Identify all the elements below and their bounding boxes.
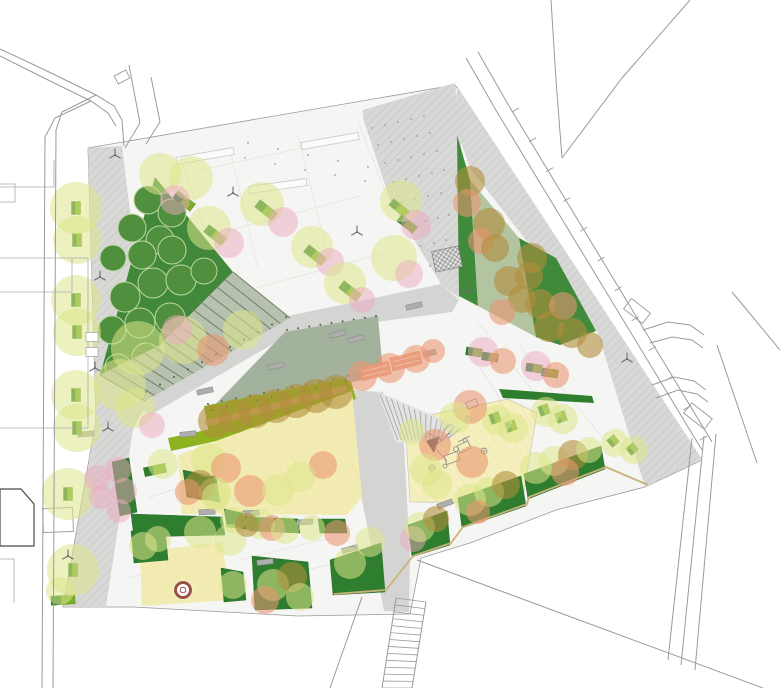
tree-canopy-pk xyxy=(139,412,165,438)
tree-canopy-yg xyxy=(422,469,452,499)
apex-dots xyxy=(377,144,379,146)
tree-canopy-yg xyxy=(184,516,216,548)
stud-row-sage-top xyxy=(286,329,288,331)
stud-row-path xyxy=(271,324,273,326)
lawn-mown-trees-mw xyxy=(118,214,146,242)
tree-canopy-sa xyxy=(251,586,279,614)
tree-canopy-pk xyxy=(107,499,131,523)
apex-dots xyxy=(410,118,412,120)
tree-canopy-sa xyxy=(489,299,515,325)
apex-dots xyxy=(423,115,425,117)
stairs xyxy=(393,619,423,622)
road-line xyxy=(681,436,704,665)
tree-canopy-yg xyxy=(202,483,230,511)
building-tab xyxy=(86,348,98,357)
apex-dots xyxy=(384,124,386,126)
tree-canopy-sa xyxy=(456,446,488,478)
stairs xyxy=(385,667,415,668)
plaza-dots xyxy=(334,174,336,176)
road-line xyxy=(695,434,716,670)
building-line xyxy=(0,160,54,187)
tree-canopy-sa xyxy=(453,189,481,217)
lawn-mown-trees-mw xyxy=(100,245,126,271)
apex-dots xyxy=(429,265,431,267)
tree-canopy-yg xyxy=(46,577,74,605)
tree-canopy-yg xyxy=(219,571,247,599)
stud-row-sage-top xyxy=(331,322,333,324)
tree-canopy-sa xyxy=(543,362,569,388)
stairs xyxy=(387,653,417,655)
stud-row-sage-top xyxy=(375,315,377,317)
tree-canopy-sa xyxy=(551,458,579,486)
stud-row-path xyxy=(187,369,189,371)
plaza-dots xyxy=(244,157,246,159)
road-line xyxy=(562,0,690,158)
tree-canopy-yg xyxy=(498,413,528,443)
tree-canopy-sa xyxy=(490,348,516,374)
tree-canopy-tn xyxy=(577,332,603,358)
tree-canopy-sa xyxy=(234,475,266,507)
parking-ticks xyxy=(512,108,519,112)
stud-row-sage-top xyxy=(319,324,321,326)
tree-canopy-yg xyxy=(620,436,648,464)
tree-canopy-yg xyxy=(271,516,299,544)
stud-row-sage-top xyxy=(297,327,299,329)
tree-canopy-tn xyxy=(481,234,509,262)
plan-root xyxy=(0,0,780,688)
stud-row-path xyxy=(173,376,175,378)
apex-dots xyxy=(397,159,399,161)
lawn-mown-trees-mw xyxy=(138,268,168,298)
tree-canopy-yg xyxy=(148,449,178,479)
tree-canopy-yg xyxy=(576,437,602,463)
stud-row-lime xyxy=(221,400,223,402)
apex-dots xyxy=(448,214,450,216)
tree-canopy-pk xyxy=(160,185,190,215)
plaza-dots xyxy=(307,154,309,156)
parking-ticks xyxy=(649,347,656,351)
apex-dots xyxy=(440,192,442,194)
stud-row-sage-top xyxy=(308,326,310,328)
crosswalk xyxy=(114,70,130,84)
lawn-mown-trees-mw xyxy=(191,258,217,284)
apex-dots xyxy=(416,135,418,137)
tree-canopy-sa xyxy=(324,520,350,546)
tree-canopy-yg xyxy=(548,404,578,434)
tree-canopy-sa xyxy=(197,334,229,366)
lawn-mown-trees-mw xyxy=(110,282,140,312)
road-line xyxy=(643,322,704,335)
apex-dots xyxy=(443,169,445,171)
stud-row-path xyxy=(285,316,287,318)
road-line xyxy=(717,345,757,463)
apex-dots xyxy=(423,153,425,155)
apex-dots xyxy=(429,132,431,134)
stud-row-path xyxy=(229,346,231,348)
tree-canopy-sa xyxy=(466,500,490,524)
building-south xyxy=(0,489,34,546)
tree-canopy-pk xyxy=(162,315,192,345)
apex-dots xyxy=(420,245,422,247)
tree-canopy-sa xyxy=(375,353,405,383)
road-line xyxy=(146,77,160,144)
apex-dots xyxy=(437,217,439,219)
apex-dots xyxy=(405,178,407,180)
tree-canopy-tn xyxy=(517,243,547,273)
tree-canopy-yg xyxy=(285,462,315,492)
apex-dots xyxy=(403,138,405,140)
plaza-dots xyxy=(274,163,276,165)
apex-dots xyxy=(397,121,399,123)
tree-canopy-sa xyxy=(421,339,445,363)
stairs xyxy=(384,674,414,675)
plaza-dots xyxy=(247,142,249,144)
tree-canopy-yg xyxy=(299,515,325,541)
stud-row-sage-top xyxy=(364,317,366,319)
plaza-dots xyxy=(337,160,339,162)
tree-canopy-pk xyxy=(268,207,298,237)
apex-dots xyxy=(418,175,420,177)
apex-dots xyxy=(371,127,373,129)
plaza-dots xyxy=(367,166,369,168)
landscape-masterplan xyxy=(0,0,780,688)
plaza-dots xyxy=(364,180,366,182)
tree-canopy-sa xyxy=(175,479,201,505)
tree-canopy-yg xyxy=(223,310,263,350)
apex-dots xyxy=(431,172,433,174)
tree-canopy-tn xyxy=(319,375,353,409)
tree-canopy-pk xyxy=(349,287,375,313)
plaza-dots xyxy=(304,169,306,171)
tree-canopy-pk xyxy=(401,210,431,240)
road-line xyxy=(0,56,116,126)
stud-row-path xyxy=(159,384,161,386)
road-line xyxy=(650,337,703,348)
tree-canopy-yg xyxy=(439,402,471,434)
apex-dots xyxy=(384,162,386,164)
tree-canopy-tn xyxy=(235,513,259,537)
road-line xyxy=(417,560,763,688)
parking-ticks xyxy=(666,376,673,380)
stairs xyxy=(388,646,418,648)
road-line xyxy=(551,0,562,158)
site-plan-canvas xyxy=(0,0,780,688)
tree-canopy-pk xyxy=(214,228,244,258)
apex-dots xyxy=(433,242,435,244)
tree-canopy-tn xyxy=(423,506,449,532)
tree-canopy-yg xyxy=(286,583,314,611)
tree-canopy-tn xyxy=(492,471,520,499)
building-line xyxy=(0,559,14,603)
apex-dots xyxy=(390,141,392,143)
apex-dots xyxy=(436,150,438,152)
apex-dots xyxy=(445,239,447,241)
stairs xyxy=(390,640,420,642)
tree-canopy-yg xyxy=(355,527,385,557)
lawn-mown-trees-mw xyxy=(158,236,186,264)
road-line xyxy=(0,49,124,146)
apex-dots xyxy=(427,195,429,197)
stud-row-sage-top xyxy=(353,319,355,321)
stairs xyxy=(386,660,416,661)
tree-canopy-yg xyxy=(145,526,171,552)
parking-ticks xyxy=(529,138,536,142)
tree-canopy-yg xyxy=(399,419,425,445)
stairs xyxy=(392,626,422,629)
apex-dots xyxy=(410,156,412,158)
stud-row-sage-top xyxy=(342,320,344,322)
stud-row-lime xyxy=(207,403,209,405)
road-line xyxy=(732,292,780,350)
plaza-dots xyxy=(277,148,279,150)
stairs xyxy=(391,633,421,635)
lawn-mown-trees-mw xyxy=(128,241,156,269)
tree-canopy-pk xyxy=(395,260,423,288)
building-tab xyxy=(86,333,98,342)
tree-canopy-yg xyxy=(53,216,101,264)
